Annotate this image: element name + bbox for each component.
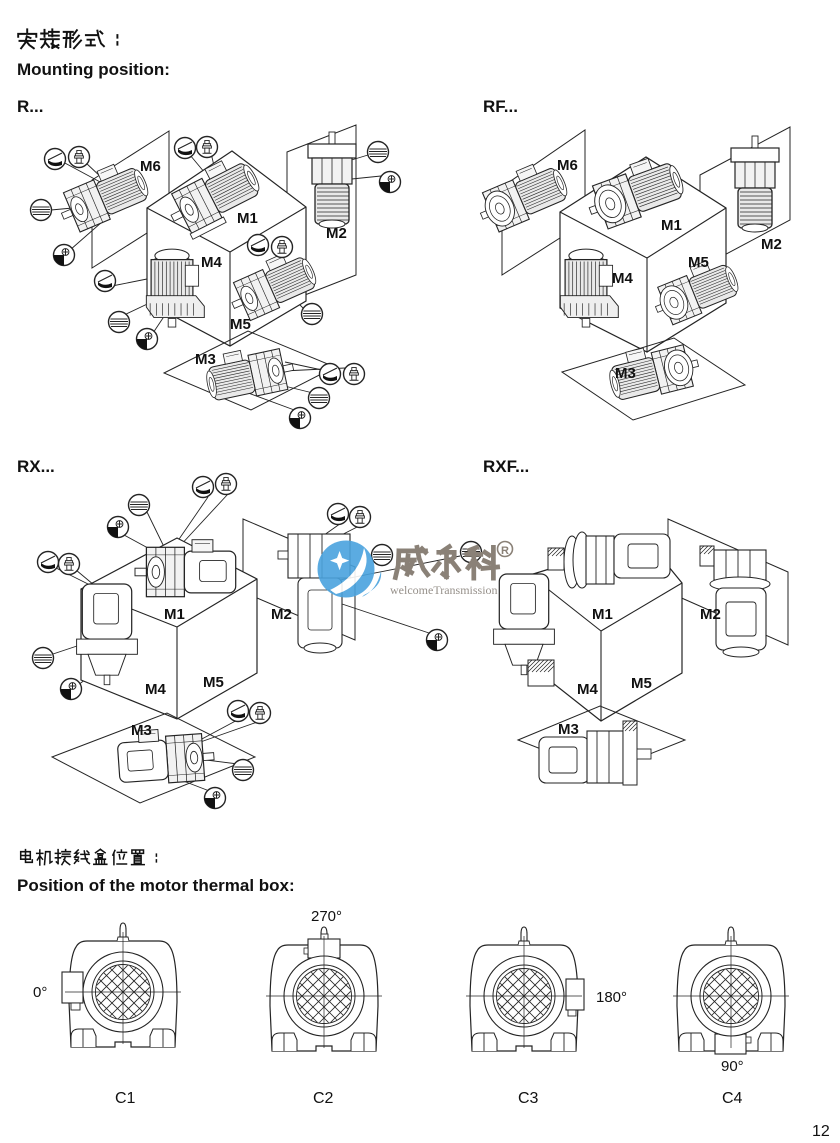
svg-text:RXF...: RXF...	[483, 457, 529, 476]
svg-text:M6: M6	[557, 157, 578, 174]
svg-text:RF...: RF...	[483, 97, 518, 116]
svg-text:M5: M5	[230, 316, 251, 333]
svg-text:M6: M6	[140, 158, 161, 175]
svg-text:M1: M1	[237, 210, 258, 227]
svg-text:C4: C4	[722, 1090, 743, 1107]
svg-text:M3: M3	[195, 351, 216, 368]
svg-text:0°: 0°	[33, 984, 47, 1001]
svg-text:12: 12	[812, 1123, 830, 1140]
svg-text:M2: M2	[326, 225, 347, 242]
svg-text:90°: 90°	[721, 1058, 744, 1075]
svg-text:M1: M1	[592, 606, 613, 623]
svg-text:C3: C3	[518, 1090, 539, 1107]
svg-text:M5: M5	[203, 674, 224, 691]
svg-text:RX...: RX...	[17, 457, 55, 476]
svg-text:180°: 180°	[596, 989, 627, 1006]
svg-text:M5: M5	[688, 254, 709, 271]
svg-text:R: R	[501, 545, 509, 557]
svg-text:M3: M3	[558, 721, 579, 738]
svg-text:270°: 270°	[311, 908, 342, 925]
svg-text:welcomeTransmission: welcomeTransmission	[390, 583, 498, 597]
svg-text:M1: M1	[164, 606, 185, 623]
svg-text:M4: M4	[145, 681, 166, 698]
svg-text:M4: M4	[577, 681, 598, 698]
svg-text:M3: M3	[615, 365, 636, 382]
svg-text:M4: M4	[612, 270, 633, 287]
svg-text:C1: C1	[115, 1090, 136, 1107]
svg-text:Mounting position:: Mounting position:	[17, 60, 170, 79]
svg-text:R...: R...	[17, 97, 43, 116]
svg-text:M3: M3	[131, 722, 152, 739]
svg-text:M2: M2	[271, 606, 292, 623]
svg-text:M1: M1	[661, 217, 682, 234]
svg-text:Position of the motor thermal: Position of the motor thermal box:	[17, 876, 295, 895]
svg-text:M5: M5	[631, 675, 652, 692]
svg-text:M4: M4	[201, 254, 222, 271]
svg-text:M2: M2	[761, 236, 782, 253]
svg-text:C2: C2	[313, 1090, 334, 1107]
svg-text:M2: M2	[700, 606, 721, 623]
